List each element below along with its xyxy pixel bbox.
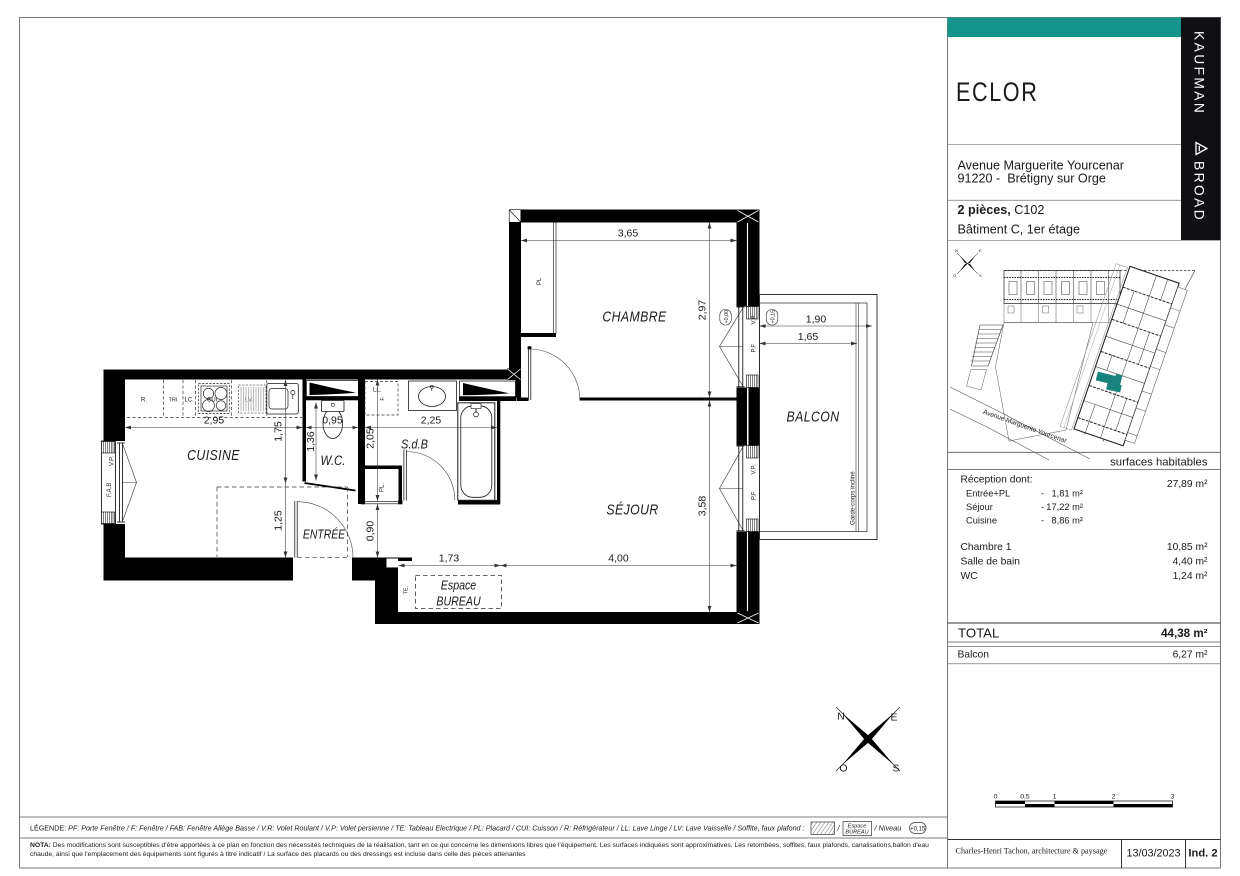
svg-text:1,65: 1,65 [798, 331, 819, 343]
svg-text:2,97: 2,97 [697, 300, 709, 321]
svg-text:F.A.B: F.A.B [107, 483, 113, 497]
svg-text:1,24 m²: 1,24 m² [1173, 571, 1208, 582]
svg-text:-: - [1041, 502, 1044, 512]
svg-text:WC: WC [961, 571, 979, 582]
svg-text:1,90: 1,90 [806, 314, 827, 326]
svg-text:Ind. 2: Ind. 2 [1188, 848, 1217, 860]
svg-text:1: 1 [1053, 794, 1057, 801]
svg-text:CUI.: CUI. [207, 398, 219, 404]
svg-text:V.P.: V.P. [752, 464, 758, 474]
svg-text:CUISINE: CUISINE [187, 447, 240, 463]
svg-text:Charles-Henri Tachon, architec: Charles-Henri Tachon, architecture & pay… [956, 847, 1108, 856]
svg-text:1,81 m²: 1,81 m² [1051, 489, 1083, 499]
svg-text:1,36: 1,36 [305, 431, 317, 452]
svg-text:CHAMBRE: CHAMBRE [602, 308, 667, 324]
svg-text:2,05: 2,05 [365, 428, 377, 449]
svg-text:O: O [953, 273, 956, 278]
svg-text:2: 2 [1112, 794, 1116, 801]
svg-text:BUREAU: BUREAU [845, 830, 869, 836]
svg-text:TRI: TRI [169, 398, 178, 404]
svg-text:3: 3 [1171, 794, 1175, 801]
svg-text:SÉJOUR: SÉJOUR [606, 500, 658, 517]
svg-text:Réception dont:: Réception dont: [961, 475, 1033, 486]
svg-text:P.F: P.F [752, 491, 758, 500]
svg-text:91220 - Brétigny sur Orge: 91220 - Brétigny sur Orge [958, 172, 1106, 186]
svg-text:4,40 m²: 4,40 m² [1173, 557, 1208, 568]
svg-text:O: O [839, 763, 847, 775]
svg-text:Salle de bain: Salle de bain [961, 557, 1021, 568]
svg-text:2 pièces, C102: 2 pièces, C102 [958, 203, 1045, 217]
svg-text:Chambre 1: Chambre 1 [961, 542, 1012, 553]
svg-text:3,58: 3,58 [697, 496, 709, 517]
svg-text:LC.: LC. [185, 398, 195, 404]
svg-text:0,90: 0,90 [365, 521, 377, 542]
svg-text:NOTA: Des modifications sont: NOTA: Des modifications sont susceptible… [30, 842, 929, 849]
svg-text:S: S [979, 273, 982, 278]
svg-text:PL: PL [537, 277, 543, 285]
svg-text:0: 0 [994, 794, 998, 801]
svg-text:Cuisine: Cuisine [966, 516, 997, 526]
svg-text:1,73: 1,73 [439, 553, 460, 565]
svg-text:-: - [1041, 516, 1044, 526]
svg-text:chaude, ainsi que l'emplacemen: chaude, ainsi que l'emplacement des équi… [30, 851, 526, 858]
svg-text:PL.: PL. [380, 483, 386, 492]
svg-text:P.F: P.F [752, 344, 758, 353]
svg-text:LV.: LV. [245, 398, 253, 404]
svg-text:BALCON: BALCON [786, 408, 839, 424]
svg-text:Avenue Marguerite Yourcenar: Avenue Marguerite Yourcenar [958, 159, 1124, 173]
svg-text:10,85 m²: 10,85 m² [1167, 542, 1208, 553]
svg-text:KAUFMAN: KAUFMAN [1192, 31, 1207, 115]
svg-text:-: - [1041, 489, 1044, 499]
svg-text:1,75: 1,75 [273, 421, 285, 442]
svg-text:44,38 m²: 44,38 m² [1161, 627, 1208, 640]
svg-text:N: N [955, 248, 958, 253]
svg-text:0,95: 0,95 [322, 415, 343, 427]
svg-text:N: N [837, 711, 845, 723]
svg-text:V.P: V.P [752, 315, 758, 324]
svg-text:Bâtiment C, 1er étage: Bâtiment C, 1er étage [958, 223, 1081, 237]
svg-text:V.P.: V.P. [110, 456, 116, 466]
svg-text:+0,00: +0,00 [724, 310, 730, 324]
svg-text:ENTRÉE: ENTRÉE [303, 527, 345, 541]
svg-text:/ Niveau: / Niveau [874, 824, 902, 833]
svg-text:surfaces habitables: surfaces habitables [1110, 457, 1208, 469]
svg-text:ECLOR: ECLOR [956, 78, 1038, 108]
svg-text:Garde-corps incliné: Garde-corps incliné [850, 471, 857, 525]
svg-text:2,25: 2,25 [421, 415, 442, 427]
svg-text:S: S [892, 763, 899, 775]
svg-text:LÉGENDE: PF: Porte Fenêtre /: LÉGENDE: PF: Porte Fenêtre / F: Fenêtre … [30, 824, 805, 833]
svg-text:4,00: 4,00 [608, 553, 629, 565]
svg-text:1,25: 1,25 [273, 510, 285, 531]
svg-text:Espace: Espace [441, 579, 477, 593]
svg-text:BUREAU: BUREAU [436, 595, 481, 609]
svg-text:6,27 m²: 6,27 m² [1173, 650, 1208, 661]
svg-text:Séjour: Séjour [966, 502, 993, 512]
svg-text:F.: F. [380, 396, 386, 400]
svg-text:3,65: 3,65 [618, 228, 639, 240]
svg-text:8,86 m²: 8,86 m² [1051, 516, 1083, 526]
svg-text:Balcon: Balcon [958, 650, 990, 661]
svg-text:TE.: TE. [404, 586, 410, 594]
svg-text:+0,15: +0,15 [771, 310, 777, 324]
svg-text:S.d.B: S.d.B [401, 437, 428, 452]
svg-text:13/03/2023: 13/03/2023 [1126, 848, 1180, 860]
svg-text:0,5: 0,5 [1020, 794, 1030, 801]
svg-text:Entrée+PL: Entrée+PL [966, 489, 1010, 499]
svg-text:+0,15: +0,15 [910, 826, 926, 832]
svg-text:R.: R. [141, 398, 147, 404]
svg-text:27,89 m²: 27,89 m² [1167, 479, 1208, 490]
svg-text:BROAD: BROAD [1192, 161, 1207, 222]
svg-text:17,22 m²: 17,22 m² [1046, 502, 1083, 512]
svg-text:TOTAL: TOTAL [958, 626, 999, 641]
svg-text:W.C.: W.C. [320, 453, 345, 468]
svg-text:2,95: 2,95 [204, 415, 225, 427]
svg-text:E: E [979, 248, 982, 253]
svg-text:E: E [890, 712, 897, 724]
